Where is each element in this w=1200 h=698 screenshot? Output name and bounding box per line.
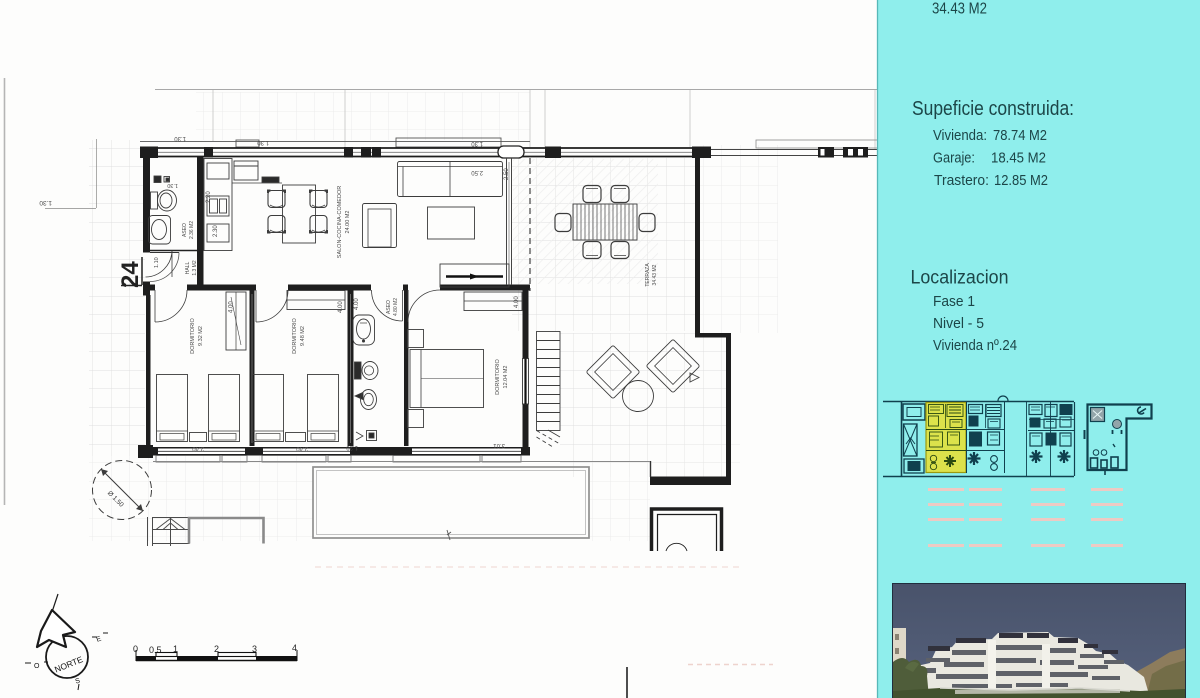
svg-text:1.30: 1.30 bbox=[174, 135, 186, 141]
svg-text:4: 4 bbox=[292, 643, 297, 653]
svg-text:2.30: 2.30 bbox=[213, 225, 219, 237]
svg-text:9.48 M2: 9.48 M2 bbox=[300, 326, 306, 346]
svg-text:1.30: 1.30 bbox=[39, 199, 52, 206]
svg-text:1.30: 1.30 bbox=[257, 139, 269, 145]
svg-text:HALL: HALL bbox=[185, 262, 191, 275]
svg-text:Trastero:: Trastero: bbox=[934, 172, 989, 189]
svg-text:Vivienda nº.24: Vivienda nº.24 bbox=[933, 337, 1017, 354]
svg-text:4.80 M2: 4.80 M2 bbox=[393, 298, 399, 316]
svg-text:34.43 M2: 34.43 M2 bbox=[652, 264, 658, 285]
svg-text:ASEO: ASEO bbox=[386, 300, 392, 314]
svg-text:Fase 1: Fase 1 bbox=[933, 293, 975, 310]
svg-text:1.30: 1.30 bbox=[471, 140, 483, 146]
svg-text:SALON-COCINA-COMEDOR: SALON-COCINA-COMEDOR bbox=[337, 186, 343, 258]
svg-text:DORMITORIO: DORMITORIO bbox=[292, 317, 298, 353]
svg-text:1.30: 1.30 bbox=[167, 182, 178, 188]
svg-text:9.32 M2: 9.32 M2 bbox=[198, 326, 204, 346]
svg-text:2.40: 2.40 bbox=[192, 445, 204, 451]
svg-text:0.5: 0.5 bbox=[149, 645, 162, 655]
svg-text:12.04 M2: 12.04 M2 bbox=[503, 366, 509, 389]
svg-text:4.00: 4.00 bbox=[338, 301, 344, 313]
svg-text:ASEO: ASEO bbox=[182, 223, 188, 237]
svg-text:1.20: 1.20 bbox=[346, 444, 358, 450]
svg-text:1.10: 1.10 bbox=[154, 257, 160, 268]
svg-text:Nivel - 5: Nivel - 5 bbox=[933, 315, 984, 332]
svg-text:1.3 M2: 1.3 M2 bbox=[192, 260, 198, 276]
svg-text:18.45 M2: 18.45 M2 bbox=[991, 150, 1046, 167]
svg-text:78.74 M2: 78.74 M2 bbox=[993, 127, 1047, 144]
svg-text:Garaje:: Garaje: bbox=[933, 150, 975, 167]
svg-text:2.20: 2.20 bbox=[206, 191, 212, 203]
svg-text:24: 24 bbox=[117, 261, 144, 288]
svg-text:DORMITORIO: DORMITORIO bbox=[190, 317, 196, 353]
svg-text:34.43 M2: 34.43 M2 bbox=[932, 1, 987, 18]
svg-text:4.00: 4.00 bbox=[229, 301, 235, 313]
svg-text:DORMITORIO: DORMITORIO bbox=[495, 358, 501, 394]
svg-text:24.00 M2: 24.00 M2 bbox=[345, 211, 351, 234]
svg-text:3.01: 3.01 bbox=[493, 442, 505, 448]
svg-text:2.40: 2.40 bbox=[296, 445, 308, 451]
svg-text:Localizacion: Localizacion bbox=[911, 268, 1009, 289]
svg-text:2.36 M2: 2.36 M2 bbox=[189, 221, 195, 239]
svg-text:O: O bbox=[34, 663, 40, 670]
svg-text:Supeficie construida:: Supeficie construida: bbox=[912, 98, 1074, 120]
svg-text:TERRAZA: TERRAZA bbox=[645, 263, 651, 287]
svg-text:Vivienda:: Vivienda: bbox=[933, 127, 987, 144]
svg-text:4.00: 4.00 bbox=[354, 298, 360, 310]
svg-text:4.00: 4.00 bbox=[514, 296, 520, 308]
svg-text:2.50: 2.50 bbox=[471, 169, 483, 175]
svg-text:2.50: 2.50 bbox=[504, 168, 510, 180]
svg-text:12.85 M2: 12.85 M2 bbox=[994, 172, 1048, 189]
